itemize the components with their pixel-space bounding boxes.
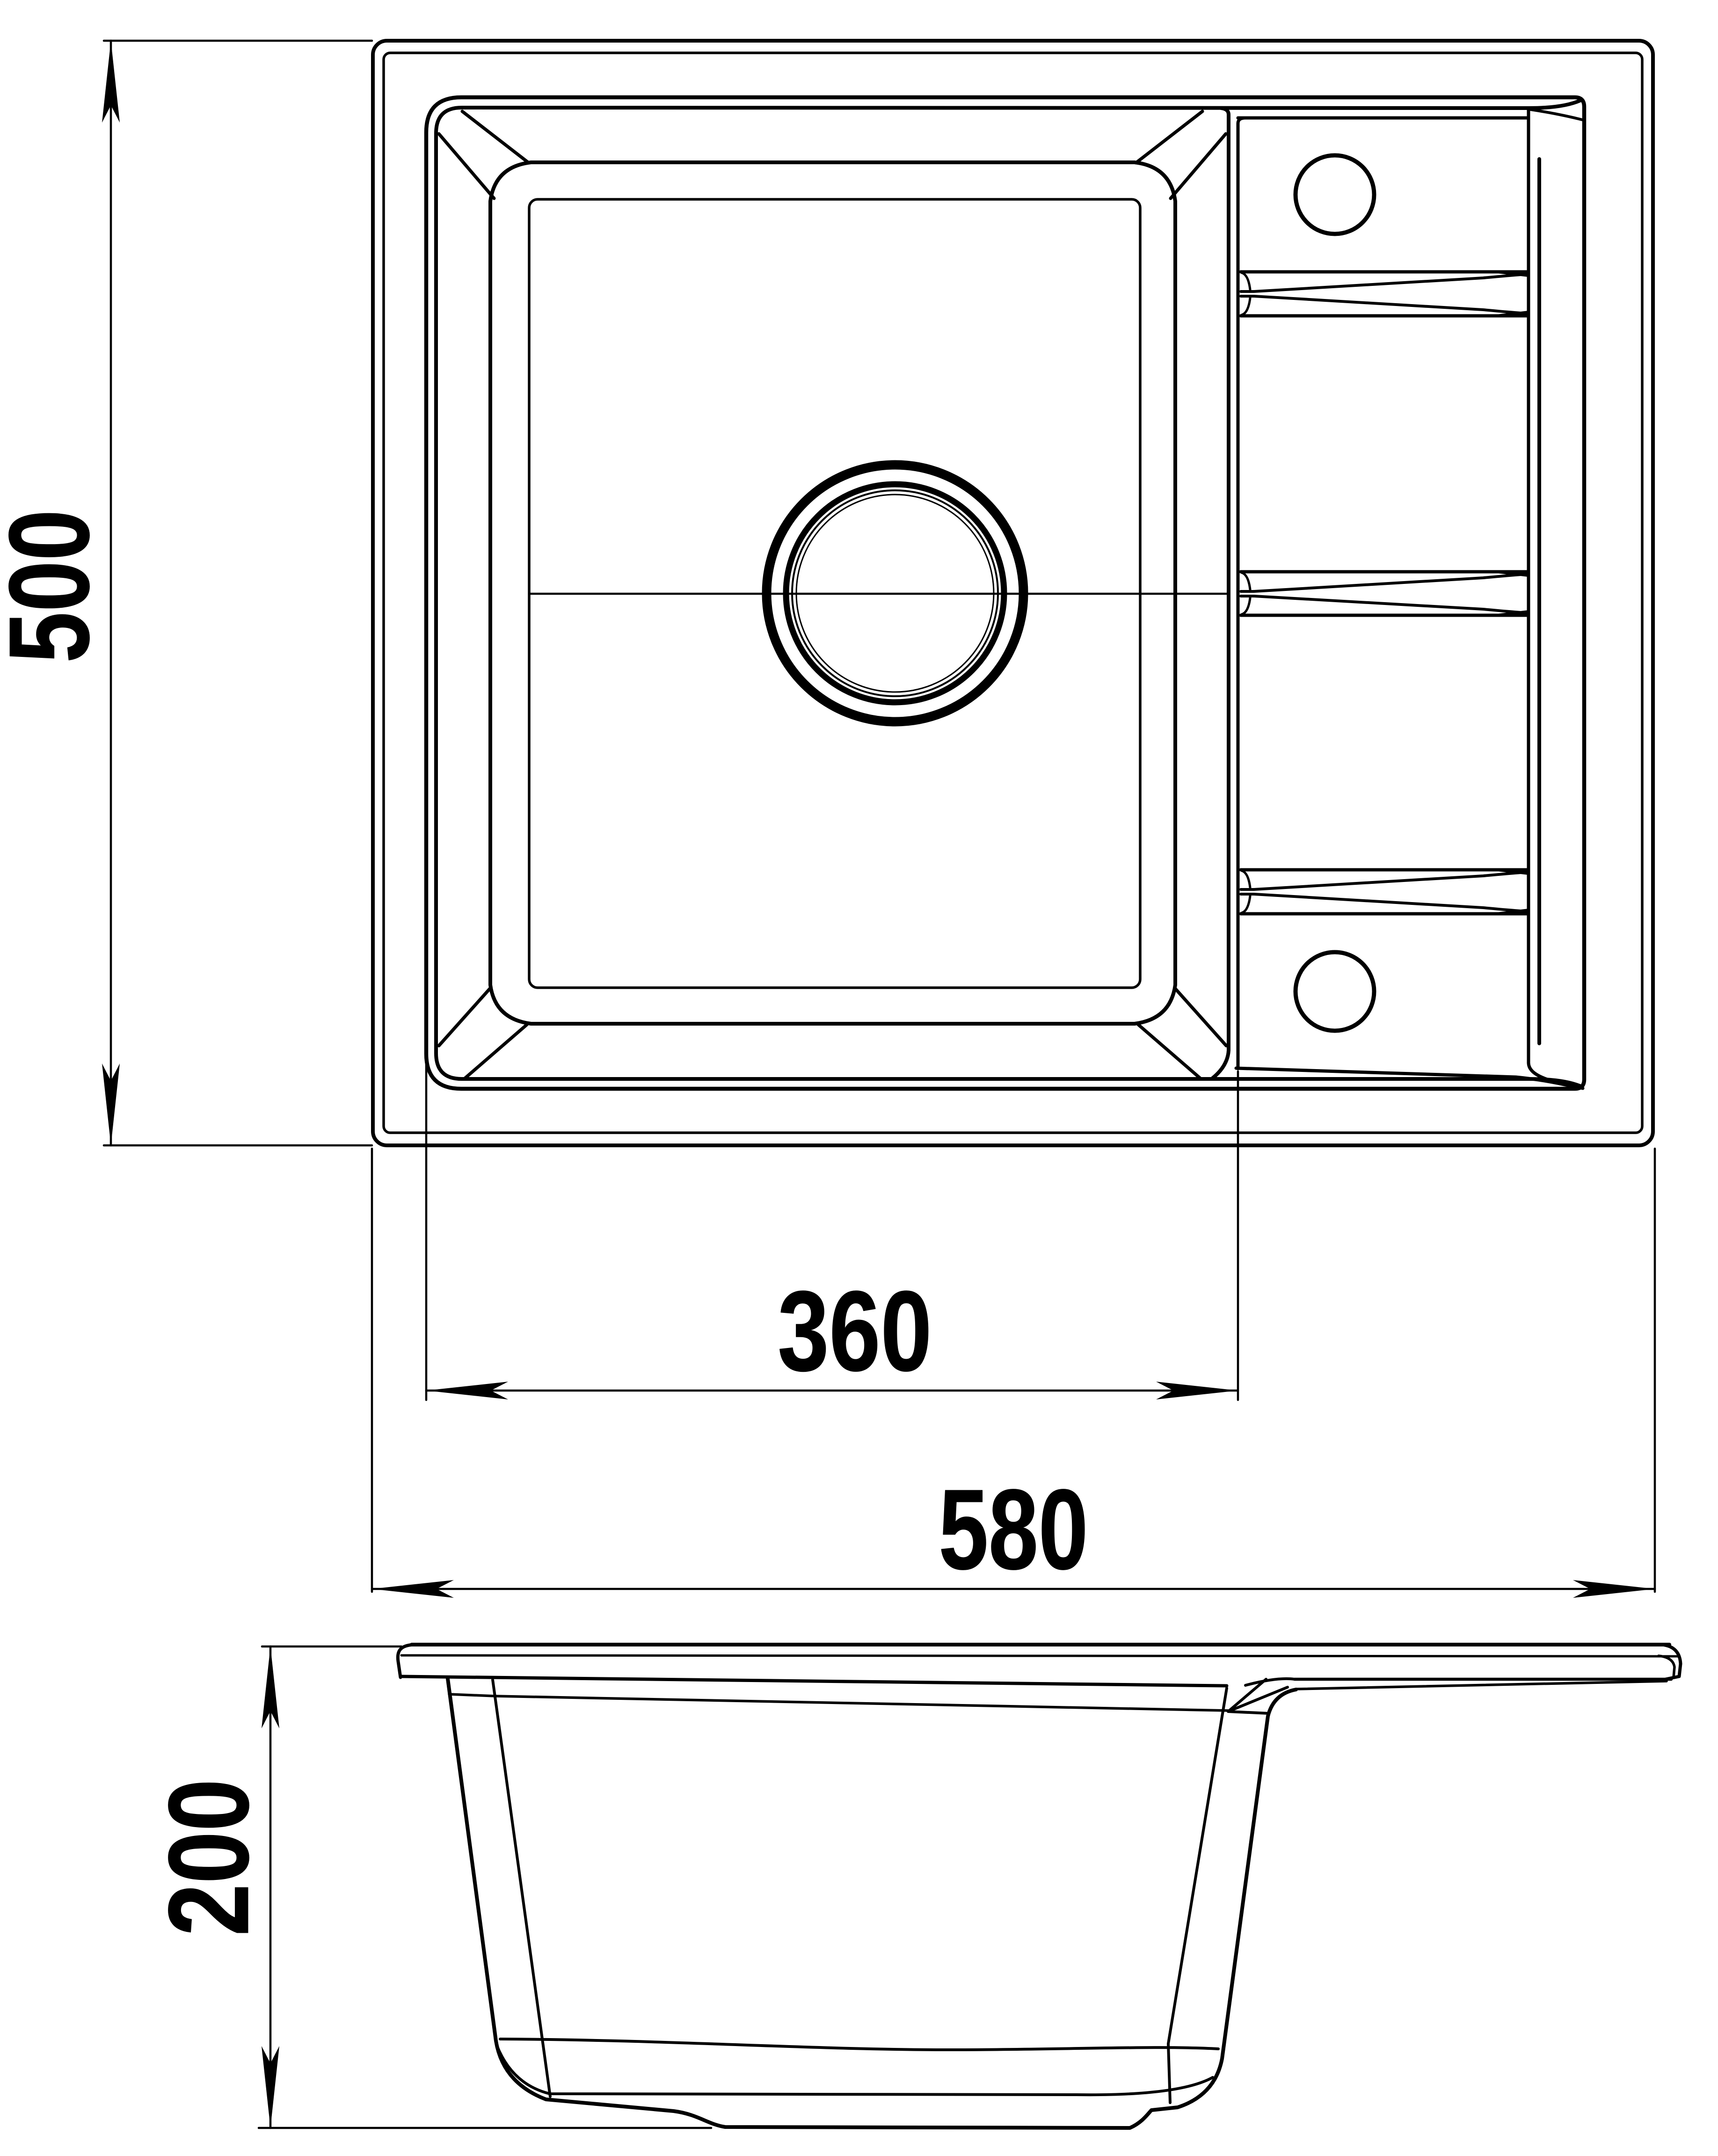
- svg-text:360: 360: [778, 1267, 932, 1395]
- svg-text:580: 580: [939, 1465, 1088, 1593]
- svg-text:200: 200: [145, 1779, 272, 1936]
- svg-text:500: 500: [0, 510, 113, 663]
